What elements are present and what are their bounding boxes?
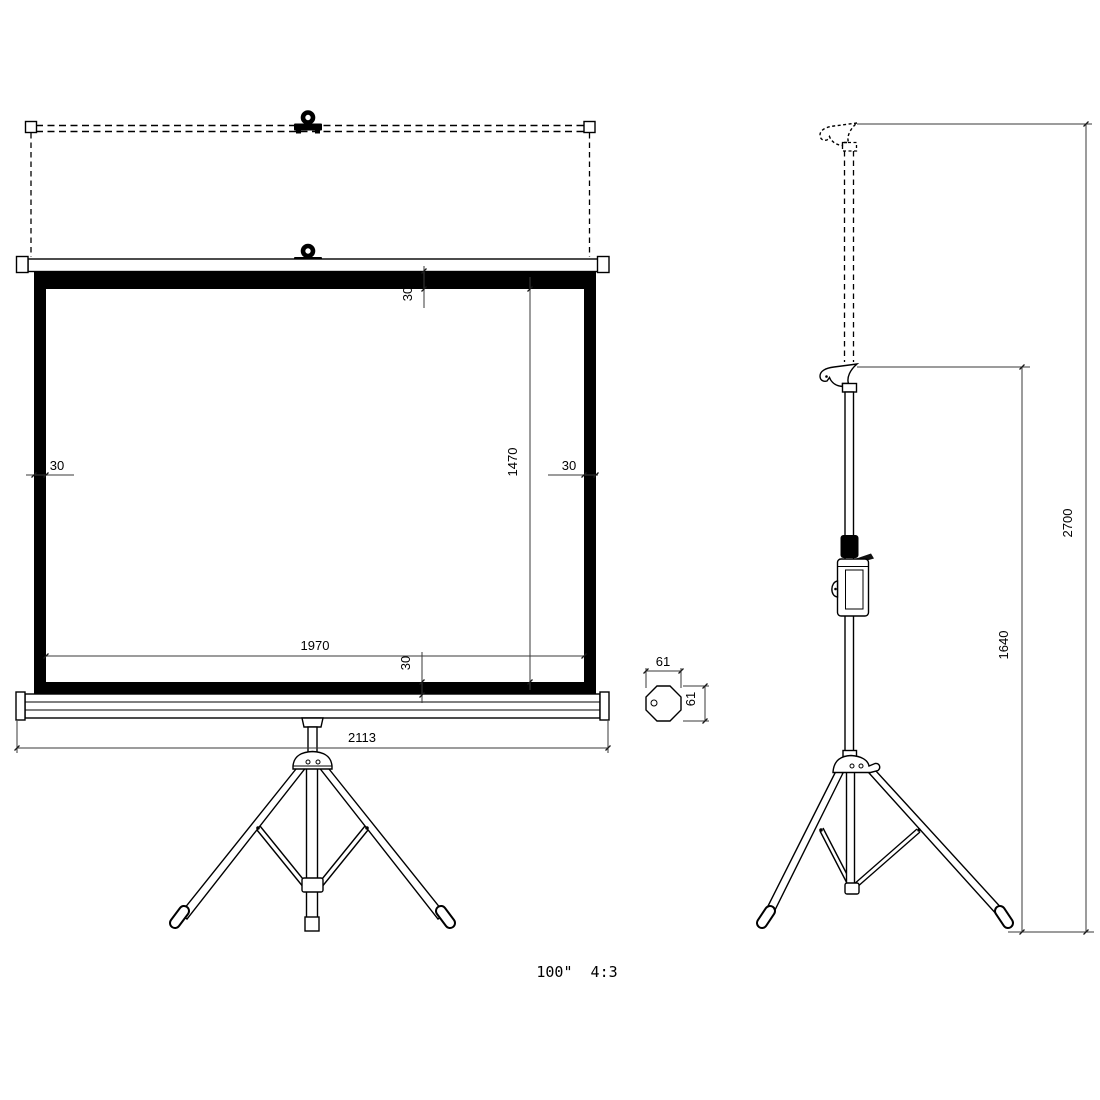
center-foot <box>305 917 319 931</box>
latch-side-button-dot <box>834 588 837 591</box>
side-right-brace-pivot <box>917 828 921 832</box>
latch-bracket <box>838 559 869 616</box>
bottom-case <box>16 692 609 720</box>
side-left-brace-pivot <box>819 828 823 832</box>
raised-endcap-left <box>26 122 37 133</box>
dim-label-octagon-height: 61 <box>683 692 698 706</box>
hook-rivet <box>825 375 828 378</box>
size-caption: 100" 4:3 <box>536 963 617 981</box>
side-brace-junction <box>845 883 859 894</box>
screen-viewing-area <box>46 289 584 682</box>
case-endcap-right <box>600 692 609 720</box>
slat-endcap-left <box>17 257 29 273</box>
dim-label-border-top: 30 <box>400 287 415 301</box>
screen-panel <box>34 271 596 695</box>
hook-collar <box>843 384 857 393</box>
raised-endcap-right <box>584 122 595 133</box>
side-center-column <box>847 772 855 884</box>
upper-pole <box>308 727 317 753</box>
case-endcap-left <box>16 692 25 720</box>
right-brace-pivot <box>365 826 369 830</box>
clamp-knob <box>841 535 859 558</box>
dim-label-octagon-width: 61 <box>656 654 670 669</box>
dim-label-border-bottom: 30 <box>398 656 413 670</box>
center-column <box>307 765 318 918</box>
technical-drawing-canvas: 30 30 30 30 1470 1970 2113 61 <box>0 0 1100 1100</box>
dim-label-stand-height: 1640 <box>996 631 1011 660</box>
dim-label-viewing-width: 1970 <box>301 638 330 653</box>
case-mount-collar <box>302 718 323 727</box>
slat-endcap-right <box>598 257 610 273</box>
slat-bar-body <box>28 259 598 272</box>
dim-label-border-left: 30 <box>50 458 64 473</box>
case-body <box>25 694 600 718</box>
dim-label-viewing-height: 1470 <box>505 448 520 477</box>
left-brace-pivot <box>256 826 260 830</box>
dim-label-case-width: 2113 <box>348 730 376 745</box>
brace-junction-clamp <box>302 878 323 892</box>
dim-label-border-right: 30 <box>562 458 576 473</box>
dim-label-total-height: 2700 <box>1060 509 1075 538</box>
